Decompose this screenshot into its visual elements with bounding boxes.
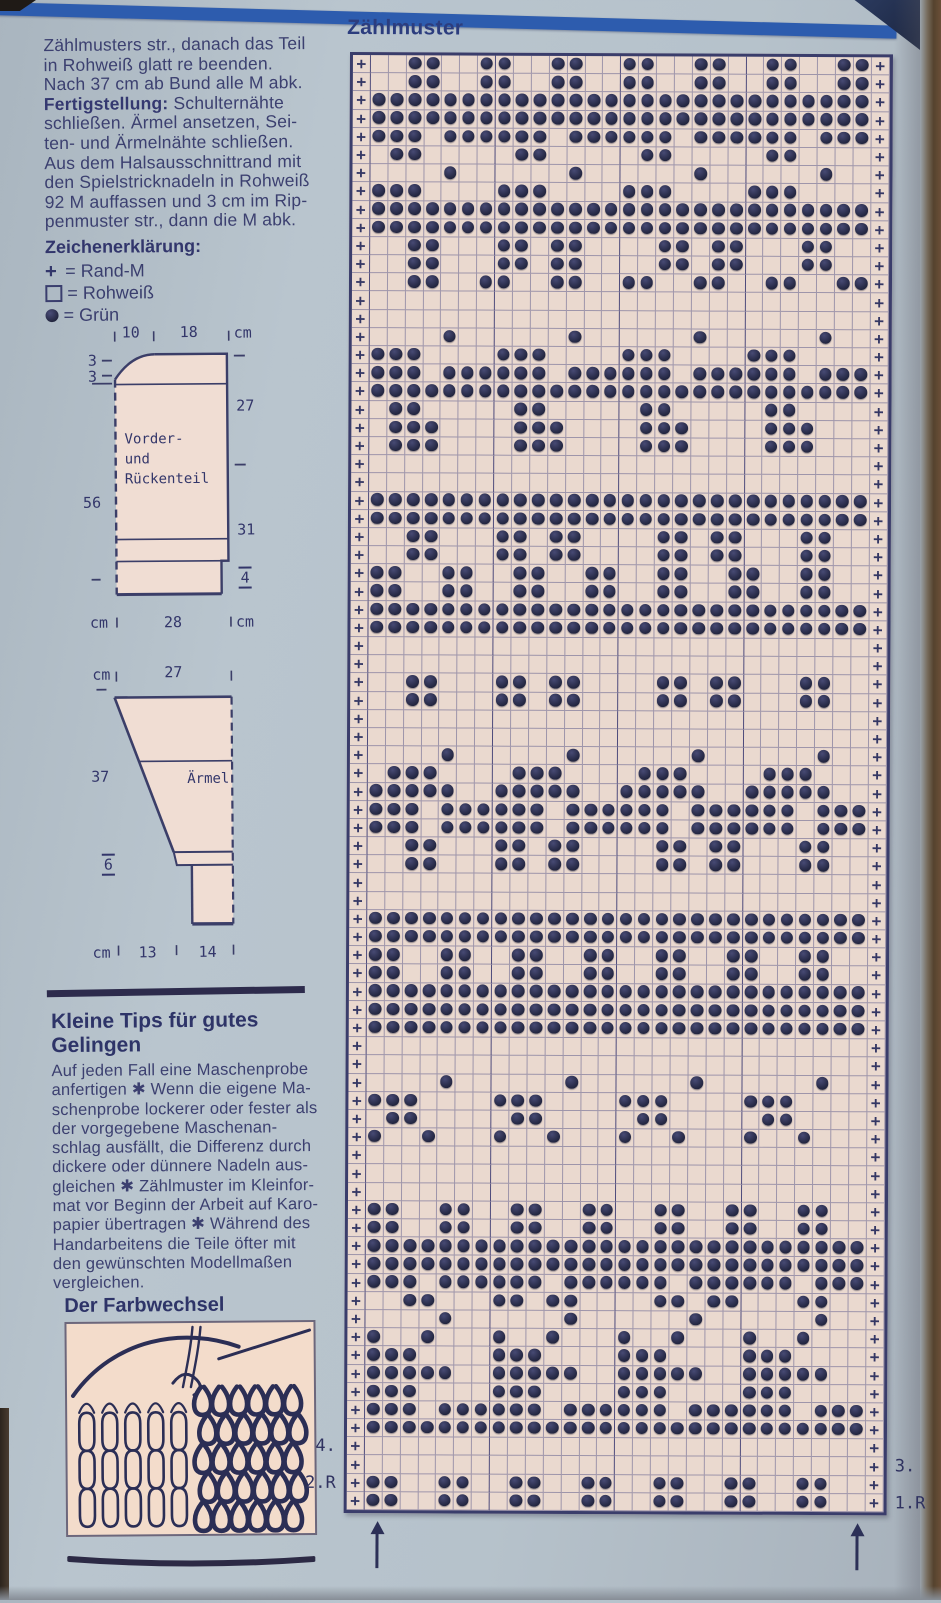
green-stitch-dot [385,1421,398,1434]
stitch-cell [620,311,638,329]
green-stitch-dot [409,57,422,70]
stitch-cell [512,474,530,492]
edge-stitch-cell: + [350,746,368,764]
stitch-cell [401,1347,419,1365]
stitch-cell [406,292,424,310]
stitch-cell [567,129,585,147]
stitch-cell [561,1493,579,1511]
green-stitch-dot [765,440,778,453]
stitch-cell [615,1384,633,1402]
stitch-cell [835,312,853,330]
green-stitch-dot [693,622,706,635]
stitch-cell [494,583,512,601]
stitch-cell [706,1039,724,1057]
green-stitch-dot [370,821,383,834]
stitch-cell [705,1348,723,1366]
stitch-cell [835,366,853,384]
green-stitch-dot [568,512,581,525]
green-stitch-dot [854,623,867,636]
stitch-cell [709,348,727,366]
edge-stitch-cell: + [868,1003,886,1021]
stitch-cell [653,1038,671,1056]
stitch-cell [781,330,799,348]
stitch-cell [742,984,760,1002]
stitch-cell [511,747,529,765]
edge-stitch-cell: + [347,1474,365,1492]
stitch-cell [385,910,403,928]
stitch-cell [782,184,800,202]
stitch-cell [818,93,836,111]
stitch-cell [547,620,565,638]
green-stitch-dot [369,912,382,925]
stitch-cell [616,1275,634,1293]
stitch-cell [422,710,440,728]
stitch-cell [602,402,620,420]
stitch-cell [419,1419,437,1437]
stitch-cell [687,1457,705,1475]
green-stitch-dot [457,1258,470,1271]
stitch-cell [634,1275,652,1293]
stitch-cell [709,439,727,457]
stitch-cell [583,529,601,547]
green-stitch-dot [618,1386,631,1399]
green-stitch-dot [695,113,708,126]
stitch-cell [833,730,851,748]
stitch-cell [760,1093,778,1111]
stitch-cell [494,529,512,547]
stitch-cell [475,874,493,892]
stitch-cell [723,1384,741,1402]
stitch-cell [419,1347,437,1365]
green-stitch-dot [439,1367,452,1380]
green-stitch-dot [369,1002,382,1015]
green-stitch-dot [514,585,527,598]
stitch-cell [401,1237,419,1255]
stitch-cell [367,946,385,964]
stitch-cell [402,1056,420,1074]
green-stitch-dot [584,931,597,944]
stitch-cell [674,311,692,329]
green-stitch-dot [780,1095,793,1108]
stitch-cell [687,1402,705,1420]
stitch-cell [545,1111,563,1129]
stitch-cell [836,93,854,111]
stitch-cell [563,1038,581,1056]
stitch-cell [655,420,673,438]
stitch-cell [472,1456,490,1474]
green-stitch-dot [784,186,797,199]
stitch-cell [474,1038,492,1056]
stitch-cell [850,1021,868,1039]
stitch-cell [423,492,441,510]
stitch-cell [526,1293,544,1311]
edge-stitch-cell: + [867,1094,885,1112]
stitch-cell [384,1146,402,1164]
stitch-cell [512,583,530,601]
stitch-cell [580,1347,598,1365]
stitch-cell [456,983,474,1001]
edge-stitch-cell: + [350,801,368,819]
green-stitch-dot [783,404,796,417]
stitch-cell [853,239,871,257]
stitch-cell [850,948,868,966]
green-stitch-dot [566,1003,579,1016]
green-stitch-dot [405,912,418,925]
stitch-cell [692,184,710,202]
stitch-cell [799,421,817,439]
stitch-cell [689,1002,707,1020]
stitch-cell [835,166,853,184]
green-stitch-dot [533,203,546,216]
stitch-cell [529,801,547,819]
stitch-cell [601,493,619,511]
stitch-cell [762,493,780,511]
green-stitch-dot [641,131,654,144]
stitch-cell [422,637,440,655]
stitch-cell [477,237,495,255]
stitch-cell [813,1312,831,1330]
stitch-cell [832,876,850,894]
stitch-cell [618,765,636,783]
edge-stitch-cell: + [867,1167,885,1185]
stitch-cell [562,1311,580,1329]
stitch-cell [476,547,494,565]
stitch-cell [705,1457,723,1475]
stitch-cell [832,948,850,966]
green-stitch-dot [800,550,813,563]
green-stitch-dot [690,1240,703,1253]
stitch-cell [777,1294,795,1312]
stitch-cell [419,1365,437,1383]
stitch-cell [725,911,743,929]
stitch-cell [800,184,818,202]
green-stitch-dot [441,966,454,979]
stitch-cell [565,674,583,692]
stitch-cell [544,1274,562,1292]
stitch-cell [566,529,584,547]
stitch-cell [455,1238,473,1256]
stitch-cell [795,1221,813,1239]
stitch-cell [366,1219,384,1237]
stitch-cell [834,494,852,512]
stitch-cell [781,384,799,402]
stitch-cell [531,183,549,201]
stitch-cell [777,1348,795,1366]
stitch-cell [365,1401,383,1419]
stitch-cell [458,547,476,565]
stitch-cell [495,383,513,401]
green-stitch-dot [653,1386,666,1399]
green-stitch-dot [372,184,385,197]
stitch-cell [800,57,818,75]
green-stitch-dot [655,1004,668,1017]
edge-stitch-cell: + [870,348,888,366]
green-stitch-dot [620,913,633,926]
green-stitch-dot [728,804,741,817]
stitch-cell [639,129,657,147]
green-stitch-dot [784,131,797,144]
stitch-cell [509,1165,527,1183]
stitch-cell [761,912,779,930]
stitch-cell [670,1075,688,1093]
green-stitch-dot [837,222,850,235]
green-stitch-dot [388,821,401,834]
stitch-cell [563,1220,581,1238]
green-stitch-dot [673,1004,686,1017]
stitch-cell [508,1402,526,1420]
stitch-cell [514,110,532,128]
stitch-cell [545,1129,563,1147]
green-stitch-dot [457,1403,470,1416]
green-stitch-dot [599,1476,612,1489]
stitch-cell [707,875,725,893]
green-stitch-dot [406,603,419,616]
stitch-cell [782,57,800,75]
stitch-cell [795,1166,813,1184]
edge-stitch-cell: + [348,1128,366,1146]
green-stitch-dot [474,1421,487,1434]
stitch-cell [796,1003,814,1021]
stitch-cell [369,528,387,546]
stitch-cell [795,1330,813,1348]
green-stitch-dot [690,1277,703,1290]
stitch-cell [424,201,442,219]
stitch-cell [691,366,709,384]
stitch-cell [759,1203,777,1221]
stitch-cell [368,601,386,619]
green-stitch-dot [711,604,724,617]
edge-stitch-cell: + [352,310,370,328]
stitch-cell [367,1001,385,1019]
green-stitch-dot [373,130,386,143]
stitch-cell [492,1056,510,1074]
stitch-cell [512,510,530,528]
green-stitch-dot [512,930,525,943]
stitch-cell [778,1112,796,1130]
green-stitch-dot [852,1005,865,1018]
stitch-cell [370,255,388,273]
green-stitch-dot [711,513,724,526]
stitch-cell [670,1293,688,1311]
stitch-cell [387,437,405,455]
green-stitch-dot [385,1366,398,1379]
green-stitch-dot [672,1204,685,1217]
green-stitch-dot [747,368,760,381]
stitch-cell [599,1020,617,1038]
stitch-cell [600,820,618,838]
stitch-cell [633,1420,651,1438]
green-stitch-dot [367,1366,380,1379]
stitch-cell [852,548,870,566]
stitch-cell [779,748,797,766]
stitch-cell [441,346,459,364]
stitch-cell [835,294,853,312]
green-stitch-dot [440,1003,453,1016]
stitch-cell [548,492,566,510]
green-stitch-dot [511,1203,524,1216]
green-stitch-dot [565,1076,578,1089]
stitch-cell [849,1239,867,1257]
green-stitch-dot [369,930,382,943]
stitch-cell [564,893,582,911]
stitch-cell [710,148,728,166]
stitch-cell [637,584,655,602]
stitch-cell [580,1275,598,1293]
stitch-cell [420,1019,438,1037]
stitch-cell [634,1293,652,1311]
stitch-cell [527,1111,545,1129]
green-stitch-dot [407,493,420,506]
edge-stitch-cell: + [349,837,367,855]
stitch-cell [637,511,655,529]
stitch-cell [402,1219,420,1237]
stitch-cell [742,1057,760,1075]
stitch-cell [778,930,796,948]
stitch-cell [691,420,709,438]
green-stitch-dot [783,386,796,399]
stitch-cell [707,839,725,857]
stitch-cell [513,292,531,310]
stitch-cell [455,1365,473,1383]
stitch-cell [602,456,620,474]
edge-stitch-cell: + [348,1255,366,1273]
stitch-cell [849,1148,867,1166]
green-stitch-dot [694,204,707,217]
stitch-cell [656,220,674,238]
stitch-cell [653,929,671,947]
stitch-cell [456,1110,474,1128]
stitch-cell [603,92,621,110]
stitch-cell [617,929,635,947]
edge-stitch-cell: + [869,585,887,603]
stitch-cell [420,1074,438,1092]
stitch-cell [853,312,871,330]
green-stitch-dot [567,803,580,816]
stitch-cell [727,348,745,366]
stitch-cell [365,1437,383,1455]
stitch-cell [657,93,675,111]
stitch-cell [675,56,693,74]
stitch-cell [814,948,832,966]
stitch-cell [798,603,816,621]
stitch-cell [545,1202,563,1220]
stitch-cell [638,365,656,383]
stitch-cell [585,56,603,74]
stitch-cell [367,983,385,1001]
stitch-cell [852,476,870,494]
edge-stitch-cell: + [351,419,369,437]
stitch-cell [726,657,744,675]
stitch-cell [492,947,510,965]
stitch-cell [709,384,727,402]
stitch-cell [492,1020,510,1038]
stitch-cell [851,748,869,766]
green-stitch-dot [766,222,779,235]
green-stitch-dot [676,385,689,398]
green-stitch-dot [495,803,508,816]
edge-stitch-cell: + [352,219,370,237]
stitch-cell [585,220,603,238]
stitch-cell [815,766,833,784]
stitch-cell [673,475,691,493]
stitch-cell [726,620,744,638]
green-stitch-dot [512,985,525,998]
stitch-cell [799,221,817,239]
stitch-cell [813,1203,831,1221]
stitch-cell [670,1129,688,1147]
green-stitch-dot [798,986,811,999]
green-stitch-dot [620,785,633,798]
stitch-cell [458,528,476,546]
stitch-cell [728,93,746,111]
stitch-cell [512,547,530,565]
green-stitch-dot [762,1095,775,1108]
green-stitch-dot [480,57,493,70]
stitch-cell [546,802,564,820]
green-stitch-dot [711,386,724,399]
green-stitch-dot [423,912,436,925]
stitch-cell [531,310,549,328]
stitch-cell [526,1420,544,1438]
stitch-cell [585,183,603,201]
green-stitch-dot [407,530,420,543]
green-stitch-dot [511,1276,524,1289]
edge-stitch-cell: + [866,1258,884,1276]
stitch-cell [402,1074,420,1092]
stitch-cell [759,1312,777,1330]
edge-stitch-cell: + [870,494,888,512]
stitch-cell [744,675,762,693]
stitch-cell [564,820,582,838]
stitch-cell [405,455,423,473]
edge-stitch-cell: + [866,1421,884,1439]
edge-stitch-cell: + [347,1419,365,1437]
green-stitch-dot [710,840,723,853]
stitch-cell [758,1494,776,1512]
stitch-cell [779,803,797,821]
stitch-cell [728,275,746,293]
stitch-cell [708,657,726,675]
stitch-cell [831,1094,849,1112]
stitch-cell [848,1294,866,1312]
green-stitch-dot [532,567,545,580]
green-stitch-dot [533,385,546,398]
stitch-cell [795,1148,813,1166]
stitch-cell [545,1147,563,1165]
stitch-cell [383,1274,401,1292]
green-stitch-dot [514,494,527,507]
stitch-cell [457,728,475,746]
green-stitch-dot [387,930,400,943]
green-stitch-dot [618,1240,631,1253]
stitch-cell [743,930,761,948]
stitch-cell [794,1494,812,1512]
stitch-cell [532,92,550,110]
stitch-cell [544,1474,562,1492]
stitch-cell [654,729,672,747]
stitch-cell [818,184,836,202]
stitch-cell [530,365,548,383]
green-stitch-dot [423,930,436,943]
green-stitch-dot [586,512,599,525]
stitch-cell [851,730,869,748]
green-stitch-dot [657,549,670,562]
stitch-cell [690,675,708,693]
stitch-cell [654,820,672,838]
stitch-cell [529,783,547,801]
stitch-cell [385,965,403,983]
stitch-cell [688,1130,706,1148]
